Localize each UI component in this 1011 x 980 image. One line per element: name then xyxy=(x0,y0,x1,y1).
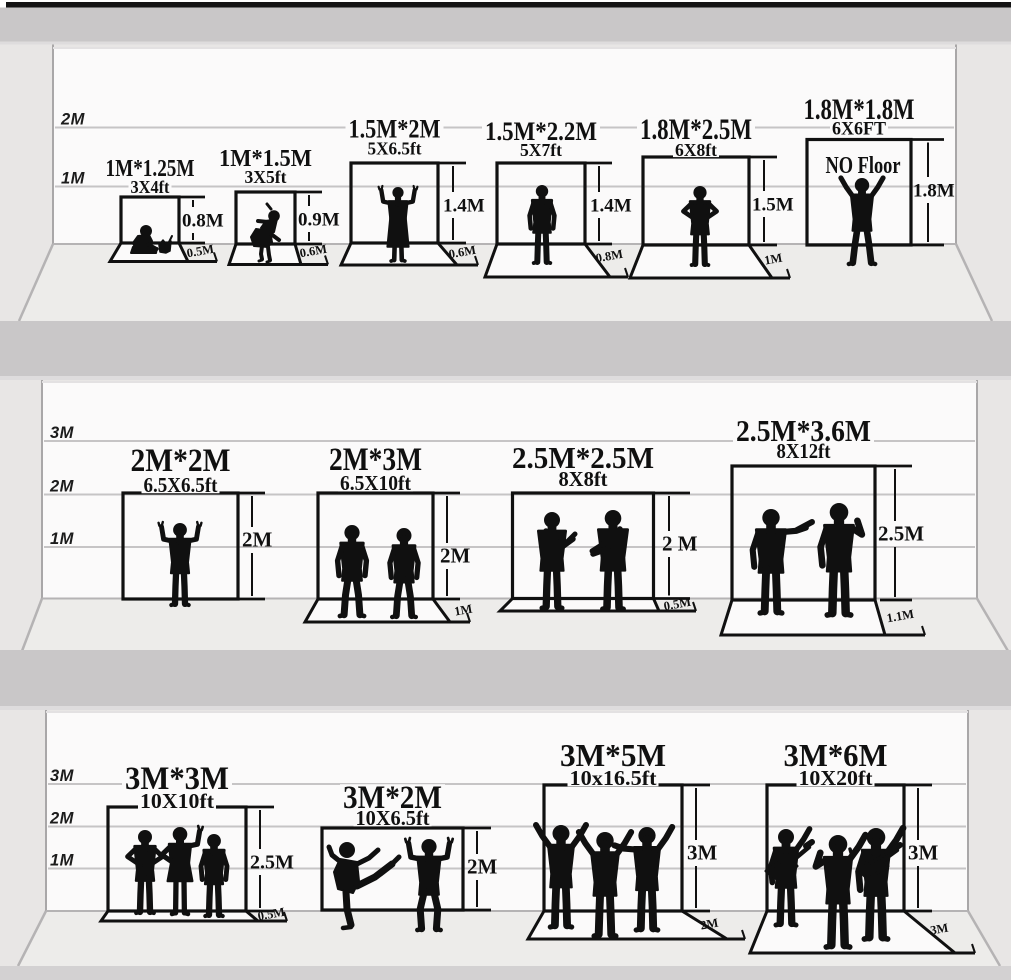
svg-text:6.5X6.5ft: 6.5X6.5ft xyxy=(144,473,218,497)
svg-text:1M: 1M xyxy=(50,530,75,548)
svg-text:2M: 2M xyxy=(49,478,75,496)
svg-text:10x16.5ft: 10x16.5ft xyxy=(570,766,657,790)
svg-text:3M: 3M xyxy=(687,841,718,865)
svg-text:3M: 3M xyxy=(908,841,939,865)
svg-text:3X5ft: 3X5ft xyxy=(245,167,287,187)
svg-text:6X8ft: 6X8ft xyxy=(675,140,717,160)
svg-text:NO Floor: NO Floor xyxy=(826,153,901,179)
svg-text:2M: 2M xyxy=(60,111,86,129)
svg-text:3M: 3M xyxy=(50,424,75,442)
svg-text:2M: 2M xyxy=(242,528,273,552)
svg-text:2 M: 2 M xyxy=(662,532,698,556)
svg-text:2M: 2M xyxy=(49,810,75,828)
svg-text:1M: 1M xyxy=(50,852,75,870)
svg-text:8X12ft: 8X12ft xyxy=(777,439,831,463)
svg-text:10X6.5ft: 10X6.5ft xyxy=(356,806,430,830)
svg-text:1.4M: 1.4M xyxy=(590,196,632,217)
svg-text:6X6FT: 6X6FT xyxy=(832,119,886,140)
svg-text:8X8ft: 8X8ft xyxy=(559,467,608,491)
svg-text:2.5M: 2.5M xyxy=(250,852,294,874)
svg-text:5X6.5ft: 5X6.5ft xyxy=(368,139,422,159)
svg-text:2.5M: 2.5M xyxy=(878,522,924,546)
svg-text:1.4M: 1.4M xyxy=(443,196,485,217)
svg-text:1.5M: 1.5M xyxy=(752,195,794,216)
svg-text:10X20ft: 10X20ft xyxy=(799,766,873,790)
svg-text:10X10ft: 10X10ft xyxy=(140,789,214,813)
svg-text:5X7ft: 5X7ft xyxy=(520,140,562,160)
svg-text:1M: 1M xyxy=(61,170,86,188)
svg-text:2M: 2M xyxy=(440,544,471,568)
svg-text:3X4ft: 3X4ft xyxy=(131,177,170,197)
svg-text:3M: 3M xyxy=(50,767,75,785)
svg-text:1.8M: 1.8M xyxy=(913,181,955,202)
svg-text:0.8M: 0.8M xyxy=(182,211,224,232)
svg-text:6.5X10ft: 6.5X10ft xyxy=(340,471,411,495)
svg-text:0.9M: 0.9M xyxy=(298,210,340,231)
svg-text:2M: 2M xyxy=(467,855,498,879)
